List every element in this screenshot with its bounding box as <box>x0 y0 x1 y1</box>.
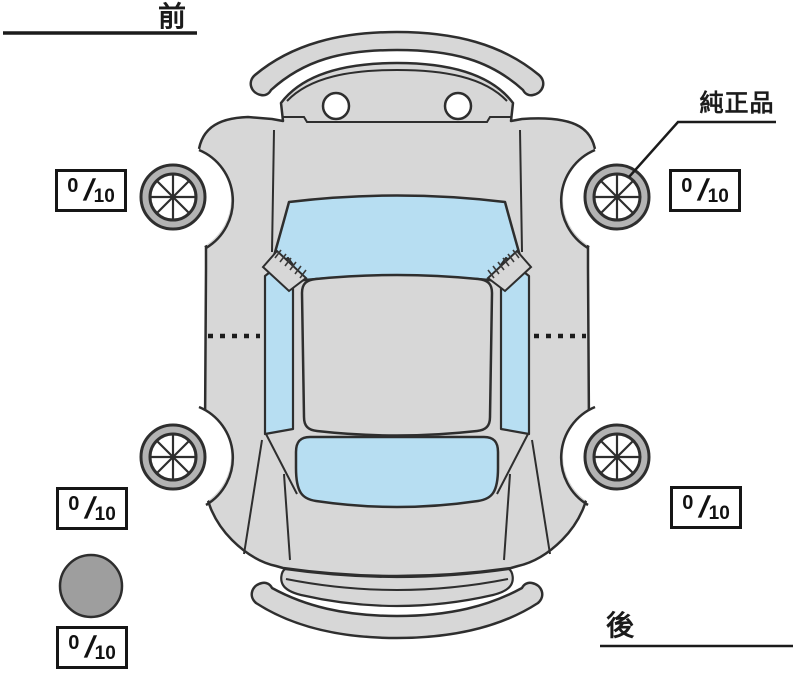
rear-window <box>296 437 498 507</box>
car-top-view <box>0 0 800 675</box>
tread-value: 0 <box>68 493 79 516</box>
front-label: 前 <box>150 3 194 31</box>
tread-max: 10 <box>94 186 115 208</box>
tread-max: 10 <box>709 503 730 525</box>
tread-value: 0 <box>681 175 692 198</box>
tread-max: 10 <box>708 186 729 208</box>
tread-value: 0 <box>68 632 79 655</box>
tread-value: 0 <box>67 175 78 198</box>
genuine-part-label: 純正品 <box>691 92 783 116</box>
tread-max: 10 <box>95 643 116 665</box>
spare-tire-icon <box>60 555 122 617</box>
tread-depth-rear-left: 0 / 10 <box>56 487 128 530</box>
tread-depth-front-right: 0 / 10 <box>669 169 741 212</box>
roof <box>302 275 492 436</box>
wheel-rear-right-icon <box>585 425 649 489</box>
hood-circle-right <box>445 93 471 119</box>
wheel-rear-left-icon <box>141 425 205 489</box>
wheel-front-right-icon <box>585 165 649 229</box>
hood-circle-left <box>323 93 349 119</box>
tread-depth-spare: 0 / 10 <box>56 626 128 669</box>
car-condition-diagram: 前 純正品 後 0 / 10 0 / 10 0 / 10 0 / 10 0 / … <box>0 0 800 675</box>
tread-max: 10 <box>95 504 116 526</box>
rear-label: 後 <box>606 612 666 640</box>
tread-value: 0 <box>682 492 693 515</box>
tread-depth-front-left: 0 / 10 <box>55 169 127 212</box>
tread-depth-rear-right: 0 / 10 <box>670 486 742 529</box>
wheel-front-left-icon <box>141 165 205 229</box>
